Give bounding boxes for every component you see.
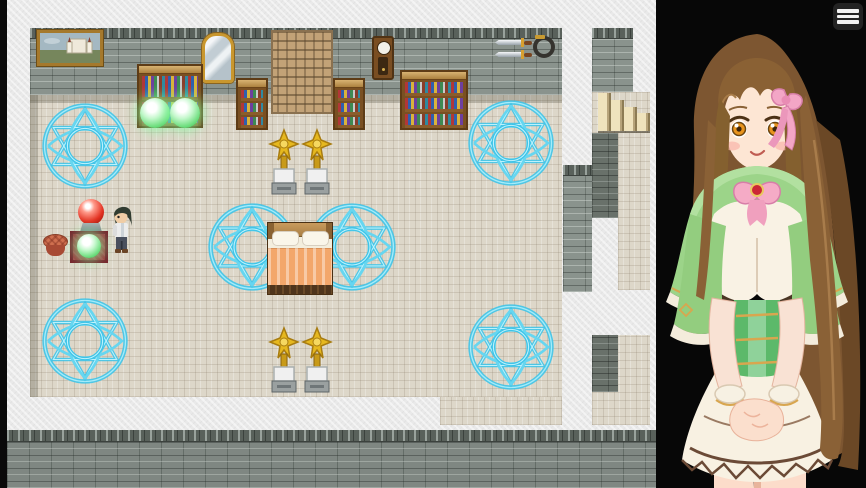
- magic-circle: [467, 303, 555, 391]
- star-trophy: [268, 128, 300, 196]
- double-bed: [267, 222, 333, 295]
- game-window: [0, 0, 866, 488]
- lower-dark-pillar: [592, 335, 618, 392]
- inscribed-tablet: [271, 30, 333, 114]
- bookshelf: [333, 78, 365, 130]
- star-trophy: [301, 326, 333, 394]
- star-trophy: [301, 128, 333, 196]
- red-crystal-ball: [78, 199, 104, 225]
- bottom-wall-battlement: [7, 430, 656, 442]
- hamburger-menu-icon: [837, 15, 859, 19]
- game-map[interactable]: [0, 0, 656, 488]
- red-gem-brooch: [751, 184, 763, 196]
- magic-circle: [41, 297, 129, 385]
- player-character: [110, 202, 134, 258]
- menu-button[interactable]: [833, 3, 863, 30]
- stone-stairs: [598, 93, 652, 133]
- right-wall-battlement: [592, 28, 633, 39]
- right-dark-pillar: [592, 133, 618, 218]
- bookshelf: [236, 78, 268, 130]
- hamburger-menu-icon: [837, 9, 859, 13]
- hamburger-menu-icon: [837, 20, 859, 24]
- magic-circle: [41, 102, 129, 190]
- green-crystal-orb: [140, 98, 170, 128]
- green-crystal-orb: [170, 98, 200, 128]
- mid-wall-segment: [563, 165, 592, 292]
- wide-bookshelf: [400, 70, 468, 130]
- edge-shadow: [30, 95, 38, 397]
- heroine-portrait-art: [656, 0, 866, 488]
- mid-wall-battlement: [563, 165, 592, 176]
- green-glow-orb: [77, 234, 101, 258]
- coiled-whip: [533, 36, 555, 58]
- right-floor-mid: [618, 133, 650, 290]
- grandfather-clock: [372, 36, 394, 80]
- mounted-swords: [495, 38, 533, 60]
- round-stool: [43, 232, 68, 259]
- wall-mirror: [202, 33, 234, 83]
- character-portrait-panel: [656, 0, 866, 488]
- magic-circle: [467, 99, 555, 187]
- room-floor-step: [440, 397, 562, 425]
- landscape-painting: [37, 30, 103, 66]
- star-trophy: [268, 326, 300, 394]
